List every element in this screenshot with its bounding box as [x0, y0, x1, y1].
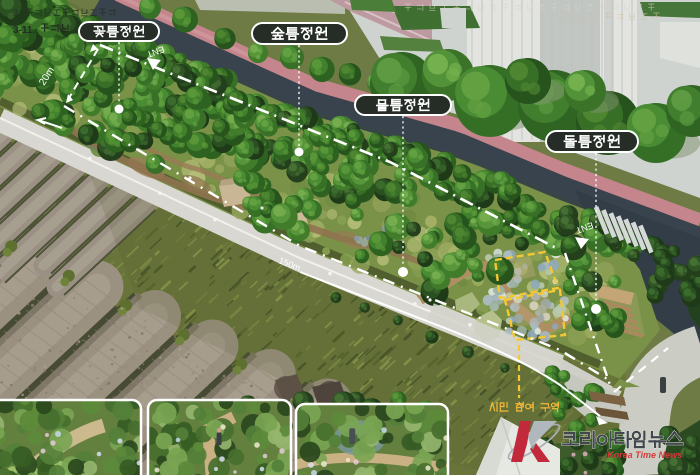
- svg-text:3-11.: 3-11.: [13, 25, 35, 36]
- svg-text:3.: 3.: [13, 8, 21, 18]
- svg-text:Korea Time News: Korea Time News: [607, 450, 682, 460]
